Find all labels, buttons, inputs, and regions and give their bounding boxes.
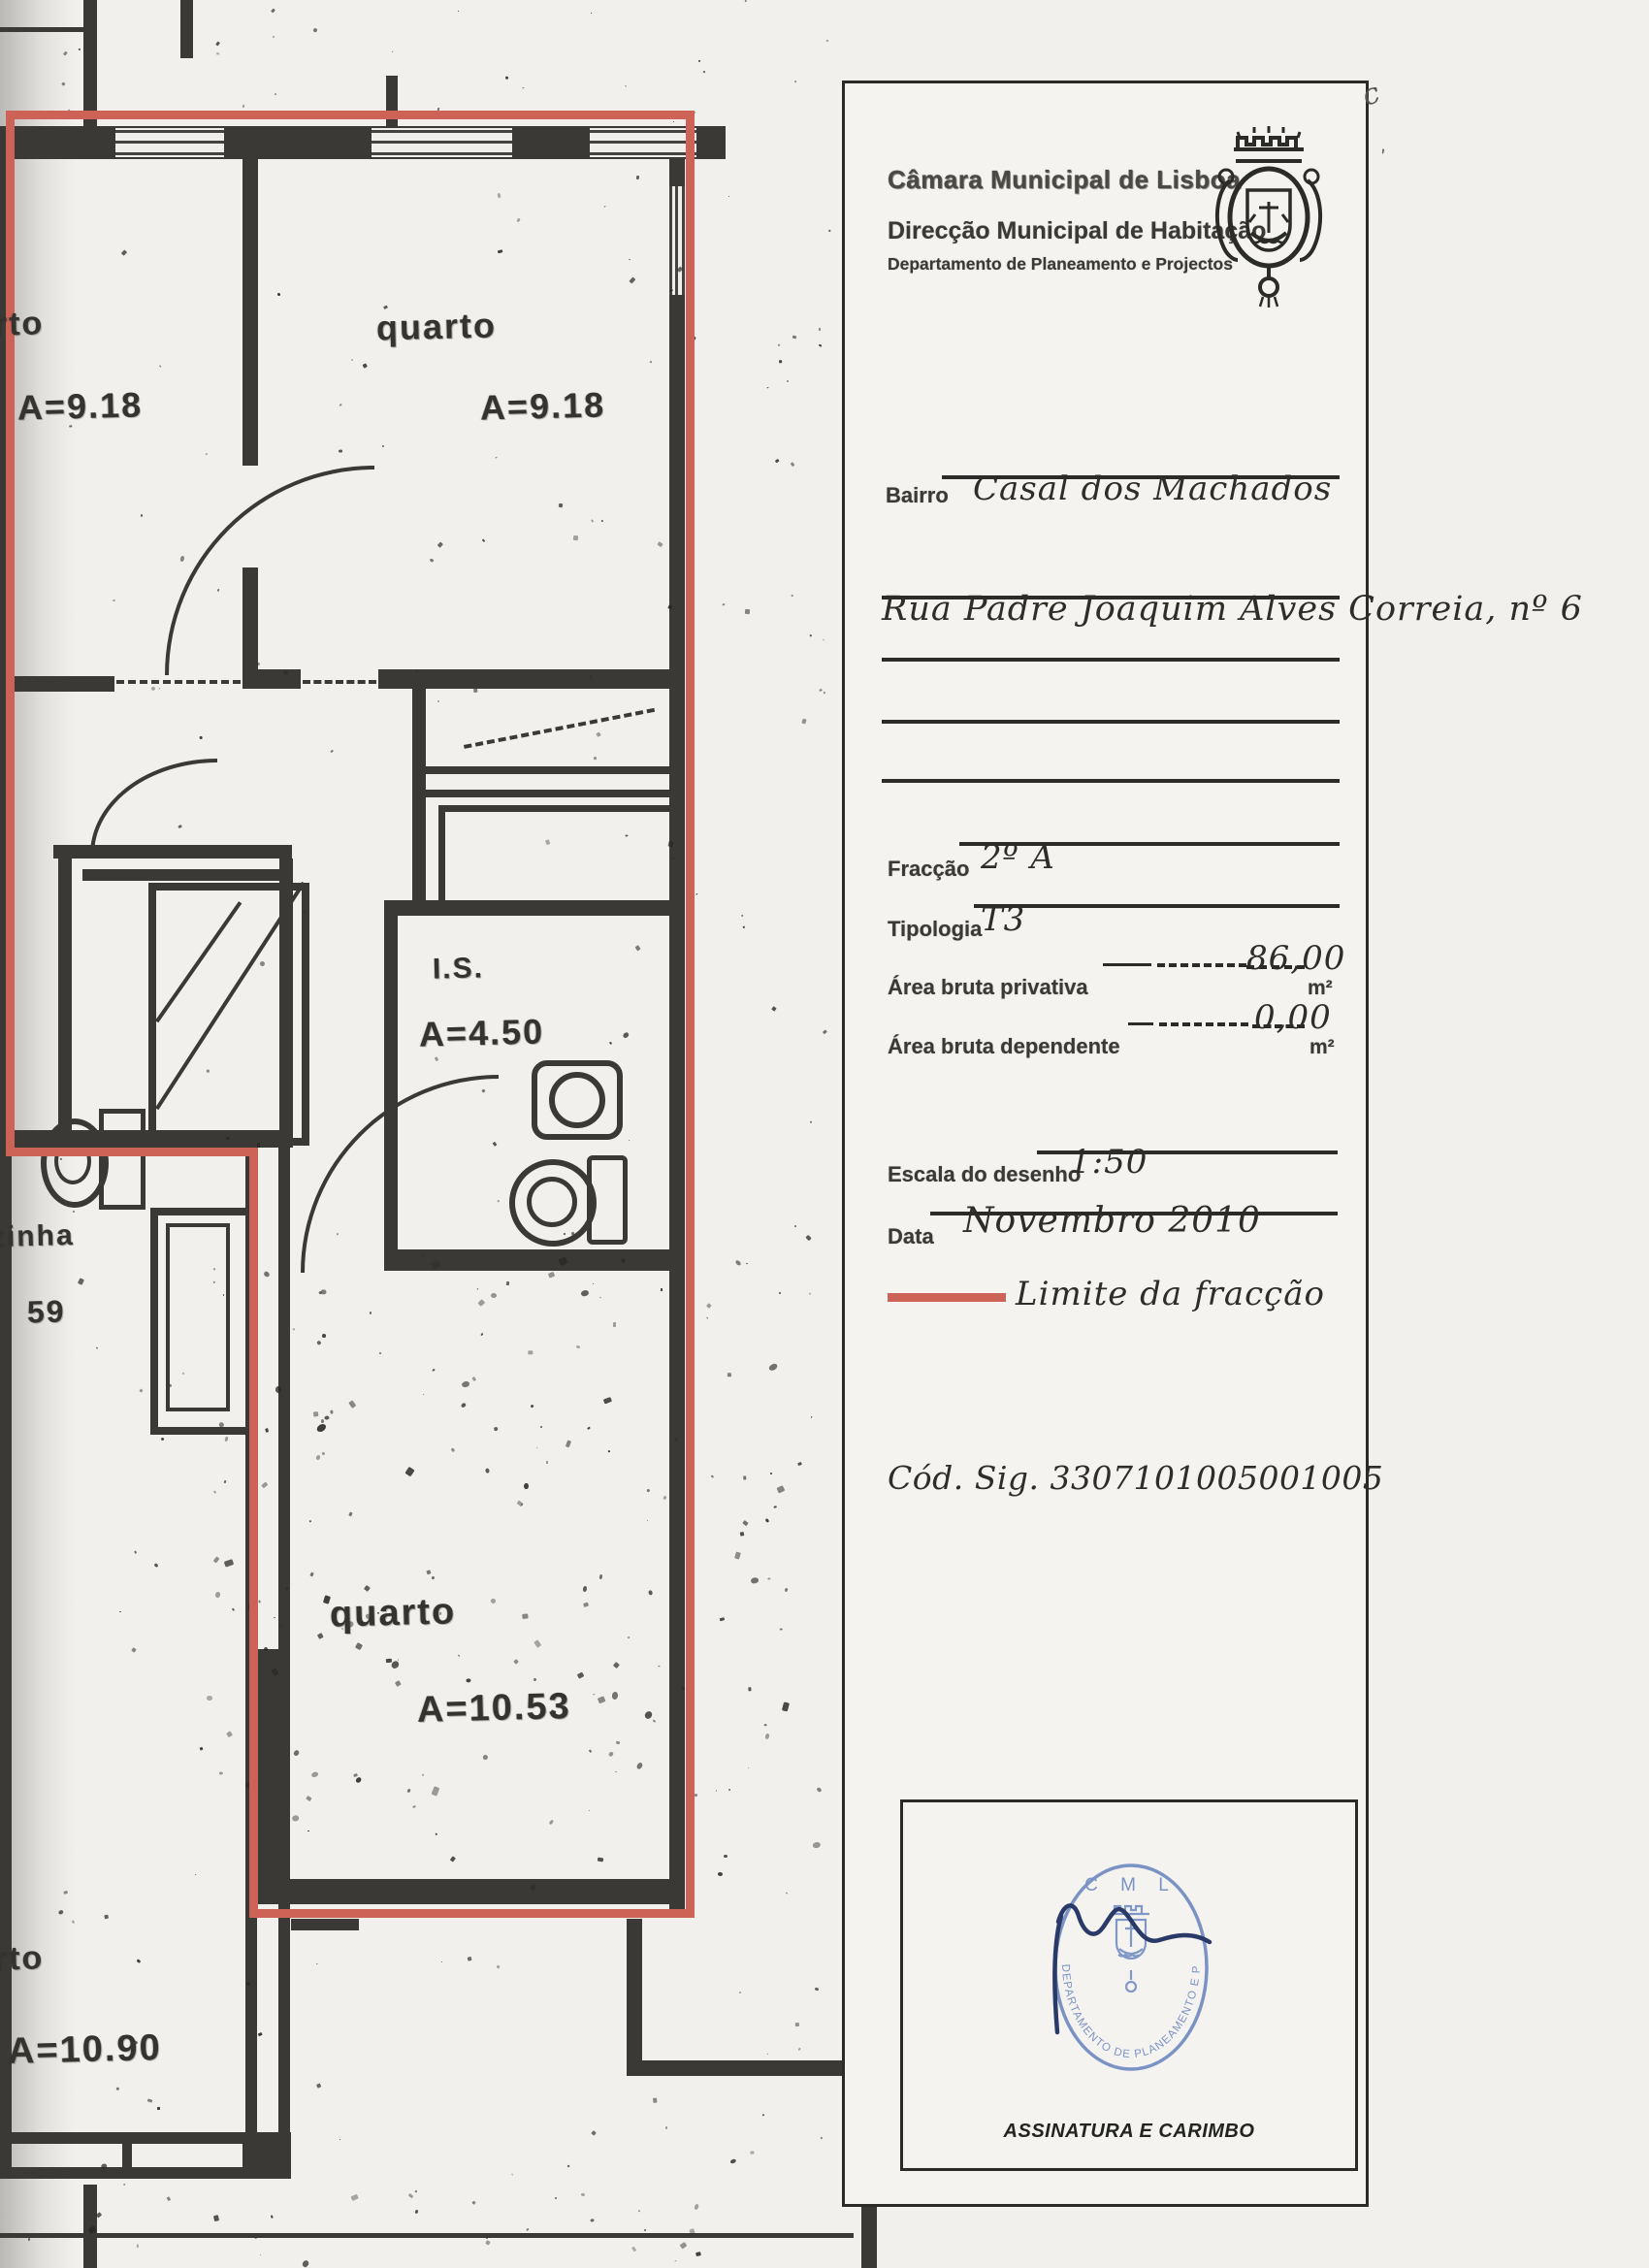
rule-line	[882, 720, 1340, 724]
room-label-bedroom-cut: rto	[0, 305, 45, 343]
noise-speck	[160, 1437, 164, 1441]
noise-speck	[79, 49, 81, 50]
shelf-line	[426, 766, 669, 774]
noise-speck	[260, 2254, 262, 2256]
noise-speck	[810, 1121, 812, 1124]
noise-speck	[309, 1572, 313, 1577]
noise-speck	[623, 1031, 630, 1038]
noise-speck	[761, 2114, 764, 2116]
cistern	[587, 1155, 628, 1245]
escala-value: 1:50	[1070, 1143, 1148, 1182]
noise-speck	[113, 599, 115, 601]
noise-speck	[767, 2054, 768, 2055]
noise-speck	[824, 692, 825, 694]
noise-speck	[533, 1677, 536, 1681]
noise-speck	[493, 1426, 498, 1431]
noise-speck	[505, 77, 508, 81]
noise-speck	[795, 2023, 799, 2026]
noise-speck	[566, 1440, 571, 1447]
noise-speck	[349, 1400, 357, 1408]
noise-speck	[583, 1586, 588, 1592]
noise-speck	[809, 1293, 811, 1295]
noise-speck	[379, 1352, 381, 1355]
noise-speck	[750, 1577, 759, 1584]
dashed-line	[1246, 965, 1305, 969]
noise-speck	[749, 1687, 752, 1691]
fraction-boundary-left	[6, 111, 15, 1156]
noise-speck	[432, 1369, 435, 1372]
fraction-boundary-midv	[249, 1148, 258, 1918]
rule-line	[882, 658, 1340, 662]
wall-right	[669, 128, 685, 1909]
lisbon-coat-of-arms-icon	[1201, 120, 1337, 314]
noise-speck	[339, 450, 342, 453]
noise-speck	[823, 639, 824, 641]
noise-speck	[458, 11, 460, 13]
noise-speck	[116, 2087, 119, 2090]
noise-speck	[739, 1532, 744, 1536]
noise-speck	[534, 1639, 542, 1647]
noise-speck	[750, 2151, 754, 2154]
noise-speck	[273, 36, 275, 39]
closet	[148, 883, 309, 1146]
noise-speck	[123, 2184, 126, 2187]
noise-speck	[506, 1281, 509, 1285]
noise-speck	[826, 40, 828, 42]
noise-speck	[213, 2215, 219, 2221]
noise-speck	[316, 1963, 318, 1965]
closet-inner	[166, 1223, 230, 1411]
noise-speck	[232, 1607, 235, 1610]
noise-speck	[339, 404, 342, 407]
wall	[412, 689, 426, 902]
noise-speck	[739, 1992, 741, 1993]
noise-speck	[478, 1299, 485, 1306]
noise-speck	[497, 1965, 501, 1969]
noise-speck	[513, 1659, 519, 1665]
noise-speck	[258, 2032, 262, 2036]
noise-speck	[224, 1480, 227, 1484]
cod-sig: Cód. Sig. 3307101005001005	[888, 1459, 1383, 1497]
rule-line	[1128, 1022, 1153, 1025]
noise-speck	[224, 1559, 234, 1568]
noise-speck	[516, 1501, 524, 1507]
noise-speck	[199, 1747, 203, 1751]
noise-speck	[775, 459, 779, 463]
noise-speck	[591, 13, 593, 15]
wall	[180, 0, 193, 58]
noise-speck	[339, 2139, 340, 2140]
noise-speck	[638, 2210, 641, 2212]
noise-speck	[784, 1588, 788, 1593]
noise-speck	[485, 1468, 490, 1473]
room-area-bedroom-top: A=9.18	[480, 384, 606, 428]
noise-speck	[823, 1029, 827, 1034]
noise-speck	[675, 2260, 677, 2262]
noise-speck	[777, 1485, 786, 1493]
wall	[58, 859, 72, 1137]
noise-speck	[496, 457, 498, 459]
noise-speck	[412, 1805, 416, 1808]
noise-speck	[150, 686, 156, 692]
noise-speck	[778, 343, 781, 346]
noise-speck	[625, 85, 627, 87]
noise-speck	[722, 603, 725, 606]
noise-speck	[157, 2107, 160, 2110]
noise-speck	[634, 945, 640, 951]
noise-speck	[779, 1292, 781, 1295]
noise-speck	[530, 1404, 533, 1408]
cml-round-stamp: C M L DEPARTAMENTO DE PLANEAMENTO E PROJ…	[1029, 1846, 1233, 2089]
noise-speck	[770, 1473, 772, 1475]
area-privativa-label: Área bruta privativa	[888, 975, 1088, 1000]
noise-speck	[810, 634, 812, 636]
window-line	[115, 152, 224, 155]
noise-speck	[96, 1347, 98, 1349]
noise-speck	[179, 556, 184, 562]
room-area-kitchen-cut: 59	[27, 1294, 66, 1331]
noise-speck	[589, 1810, 590, 1811]
noise-speck	[727, 1373, 731, 1377]
noise-speck	[451, 1447, 455, 1452]
noise-speck	[407, 2193, 413, 2199]
noise-speck	[242, 105, 245, 108]
window-line	[372, 141, 512, 144]
room-area-bedroom-cut: A=9.18	[17, 384, 144, 428]
noise-speck	[828, 230, 831, 233]
data-label: Data	[888, 1224, 934, 1249]
noise-speck	[330, 1410, 333, 1414]
dashed-line	[1159, 1022, 1248, 1026]
escala-label: Escala do desenho	[888, 1162, 1081, 1187]
noise-speck	[258, 1600, 261, 1603]
noise-speck	[226, 1731, 233, 1737]
noise-speck	[467, 1957, 471, 1961]
noise-speck	[311, 1771, 319, 1778]
noise-speck	[695, 2252, 701, 2256]
noise-speck	[596, 731, 600, 736]
noise-speck	[629, 1140, 630, 1142]
noise-speck	[78, 1278, 84, 1284]
noise-speck	[131, 1647, 137, 1653]
noise-speck	[636, 1762, 644, 1769]
noise-speck	[741, 915, 744, 918]
shelf-line	[426, 790, 669, 797]
noise-speck	[613, 1662, 620, 1669]
noise-speck	[498, 249, 503, 253]
noise-speck	[580, 1289, 589, 1297]
wall	[0, 27, 85, 32]
noise-speck	[549, 1820, 554, 1826]
area-dependente-value: 0,00	[1254, 998, 1332, 1037]
noise-speck	[213, 1490, 216, 1494]
noise-speck	[355, 1642, 363, 1650]
room-label-bedroom-bottom: quarto	[329, 1591, 456, 1636]
noise-speck	[587, 1427, 591, 1430]
noise-speck	[576, 1345, 581, 1348]
noise-speck	[591, 519, 594, 523]
noise-speck	[778, 360, 782, 363]
fraction-boundary-mid	[6, 1148, 258, 1156]
noise-speck	[312, 27, 317, 32]
noise-speck	[224, 1437, 228, 1442]
noise-speck	[277, 293, 280, 296]
legend-red-line	[888, 1293, 1006, 1302]
noise-speck	[764, 1724, 767, 1726]
wall	[82, 869, 292, 881]
noise-speck	[594, 757, 597, 760]
noise-speck	[316, 1340, 321, 1345]
noise-speck	[485, 2240, 491, 2245]
window-line	[115, 141, 224, 144]
noise-speck	[819, 344, 822, 347]
noise-speck	[521, 1504, 523, 1506]
noise-speck	[768, 1363, 779, 1373]
area-privativa-unit: m²	[1308, 977, 1333, 1000]
noise-speck	[480, 1333, 483, 1336]
wall	[83, 0, 97, 128]
noise-speck	[364, 1585, 371, 1592]
noise-speck	[653, 1719, 656, 1722]
area-privativa-value: 86,00	[1246, 939, 1345, 978]
rule-line	[959, 842, 1340, 846]
room-label-bathroom: I.S.	[433, 952, 485, 986]
noise-speck	[153, 1563, 158, 1568]
noise-speck	[573, 535, 578, 541]
noise-speck	[577, 1671, 585, 1678]
noise-speck	[200, 736, 203, 739]
noise-speck	[616, 1741, 620, 1745]
noise-speck	[271, 8, 275, 13]
noise-speck	[612, 1692, 619, 1700]
wall	[278, 1148, 290, 2132]
noise-speck	[647, 1520, 649, 1522]
noise-speck	[121, 249, 127, 255]
noise-speck	[598, 1858, 604, 1863]
noise-speck	[159, 688, 161, 690]
noise-speck	[629, 259, 630, 261]
noise-speck	[306, 1796, 311, 1801]
noise-speck	[590, 2219, 594, 2222]
closet-diagonal	[464, 708, 655, 749]
noise-speck	[472, 1377, 476, 1381]
noise-speck	[522, 1613, 529, 1618]
noise-speck	[608, 1751, 614, 1757]
noise-speck	[435, 1056, 439, 1061]
noise-speck	[540, 1426, 542, 1428]
door-threshold	[303, 680, 376, 684]
noise-speck	[661, 1288, 663, 1291]
noise-speck	[583, 1603, 589, 1608]
noise-speck	[746, 1263, 748, 1265]
noise-speck	[293, 1749, 301, 1757]
tipologia-label: Tipologia	[888, 917, 982, 942]
noise-speck	[415, 2190, 417, 2192]
noise-speck	[598, 1696, 606, 1704]
noise-speck	[821, 2137, 823, 2139]
rule-line	[1037, 1150, 1338, 1154]
noise-speck	[315, 1455, 320, 1461]
noise-speck	[657, 541, 663, 547]
noise-speck	[437, 700, 439, 702]
noise-speck	[516, 217, 521, 222]
noise-speck	[141, 514, 144, 517]
noise-speck	[351, 359, 354, 362]
noise-speck	[382, 445, 385, 448]
room-area-bedroom-bottom: A=10.53	[416, 1686, 571, 1732]
noise-speck	[779, 1628, 783, 1631]
noise-speck	[603, 1397, 612, 1405]
noise-speck	[591, 2130, 597, 2136]
fraccao-label: Fracção	[888, 857, 969, 882]
noise-speck	[748, 1767, 750, 1768]
wall	[627, 2060, 879, 2076]
noise-speck	[105, 1915, 109, 1919]
window-line	[590, 130, 696, 133]
wall	[242, 2132, 291, 2179]
org-title: Câmara Municipal de Lisboa	[888, 165, 1241, 195]
noise-speck	[694, 2203, 699, 2211]
wall	[0, 1130, 293, 1148]
rule-line	[882, 596, 1340, 599]
noise-speck	[390, 1660, 400, 1669]
noise-speck	[711, 1474, 714, 1477]
noise-speck	[524, 1483, 529, 1490]
room-label-bedroom-top: quarto	[376, 305, 498, 348]
noise-speck	[805, 1235, 811, 1241]
noise-speck	[812, 1841, 821, 1848]
window-line	[675, 186, 678, 295]
noise-speck	[321, 1419, 324, 1423]
noise-speck	[631, 2247, 637, 2252]
noise-speck	[437, 541, 443, 547]
noise-speck	[724, 1855, 727, 1859]
noise-speck	[432, 1576, 435, 1579]
noise-speck	[615, 1771, 617, 1773]
noise-speck	[362, 363, 368, 369]
noise-speck	[787, 380, 789, 382]
washbasin-bowl	[549, 1072, 605, 1128]
noise-speck	[511, 2173, 513, 2175]
noise-speck	[706, 1303, 711, 1308]
noise-speck	[441, 1961, 443, 1962]
window-line	[372, 130, 512, 133]
noise-speck	[782, 1701, 790, 1711]
noise-speck	[594, 1694, 596, 1695]
noise-speck	[274, 1617, 275, 1618]
noise-speck	[275, 93, 277, 96]
noise-speck	[427, 1570, 432, 1574]
signature-box: C M L DEPARTAMENTO DE PLANEAMENTO E PROJ…	[900, 1799, 1358, 2171]
form-panel: Câmara Municipal de Lisboa Direcção Muni…	[842, 81, 1369, 2207]
noise-speck	[324, 1415, 329, 1419]
noise-speck	[207, 1696, 212, 1701]
noise-speck	[355, 1776, 363, 1784]
noise-speck	[797, 2048, 801, 2052]
noise-speck	[706, 1317, 708, 1319]
noise-speck	[523, 87, 525, 89]
area-dependente-unit: m²	[1309, 1036, 1335, 1059]
noise-speck	[601, 520, 604, 523]
noise-speck	[293, 1328, 295, 1330]
door-arc	[90, 759, 217, 855]
noise-speck	[811, 1416, 813, 1418]
noise-speck	[467, 1678, 471, 1682]
noise-speck	[793, 81, 796, 83]
noise-speck	[695, 1794, 698, 1798]
noise-speck	[698, 60, 701, 63]
window-line	[590, 141, 696, 144]
noise-speck	[134, 1550, 137, 1554]
window-line	[590, 152, 696, 155]
noise-speck	[213, 1556, 220, 1564]
noise-speck	[536, 1447, 538, 1449]
noise-speck	[415, 2210, 419, 2214]
noise-speck	[423, 1394, 425, 1396]
room-label-kitchen-cut: zinha	[0, 1219, 75, 1254]
noise-speck	[147, 2098, 153, 2102]
rule-line	[882, 779, 1340, 783]
noise-speck	[461, 1380, 469, 1388]
noise-speck	[490, 1598, 497, 1604]
noise-speck	[370, 1312, 372, 1314]
noise-speck	[786, 1893, 788, 1895]
noise-speck	[215, 41, 220, 46]
noise-speck	[316, 2083, 321, 2088]
door-arc	[165, 466, 374, 675]
noise-speck	[477, 1288, 479, 1290]
noise-speck	[458, 1655, 460, 1657]
noise-speck	[743, 1475, 746, 1479]
wall	[386, 76, 398, 130]
noise-speck	[630, 276, 636, 283]
noise-speck	[819, 328, 821, 331]
rule-line	[942, 475, 1340, 479]
noise-speck	[137, 2244, 139, 2248]
noise-speck	[386, 1659, 392, 1664]
wall	[83, 2185, 97, 2268]
noise-speck	[217, 52, 220, 54]
door-threshold	[116, 680, 241, 684]
wall	[242, 159, 258, 466]
noise-speck	[271, 2215, 273, 2218]
noise-speck	[646, 1488, 650, 1492]
noise-speck	[461, 1402, 467, 1408]
noise-speck	[555, 2197, 558, 2200]
window-line	[115, 130, 224, 133]
noise-speck	[139, 1388, 143, 1392]
noise-speck	[718, 1872, 724, 1876]
noise-speck	[473, 689, 477, 694]
noise-speck	[392, 51, 393, 53]
wall	[384, 900, 669, 916]
rule-line	[930, 1212, 1338, 1215]
noise-speck	[263, 1271, 271, 1279]
noise-speck	[734, 1259, 741, 1266]
noise-speck	[659, 1666, 661, 1667]
noise-speck	[696, 893, 698, 895]
noise-speck	[745, 0, 747, 2]
window-line	[669, 186, 672, 295]
scanned-document-page: rto A=9.18 quarto A=9.18 I.S. A=4.50 zin…	[0, 0, 1649, 2268]
noise-speck	[159, 365, 161, 368]
room-area-bedroom-left: A=10.90	[7, 2027, 162, 2073]
noise-speck	[644, 2229, 647, 2232]
noise-speck	[743, 925, 745, 928]
noise-speck	[792, 595, 793, 597]
noise-speck	[636, 176, 639, 179]
noise-speck	[745, 609, 750, 614]
